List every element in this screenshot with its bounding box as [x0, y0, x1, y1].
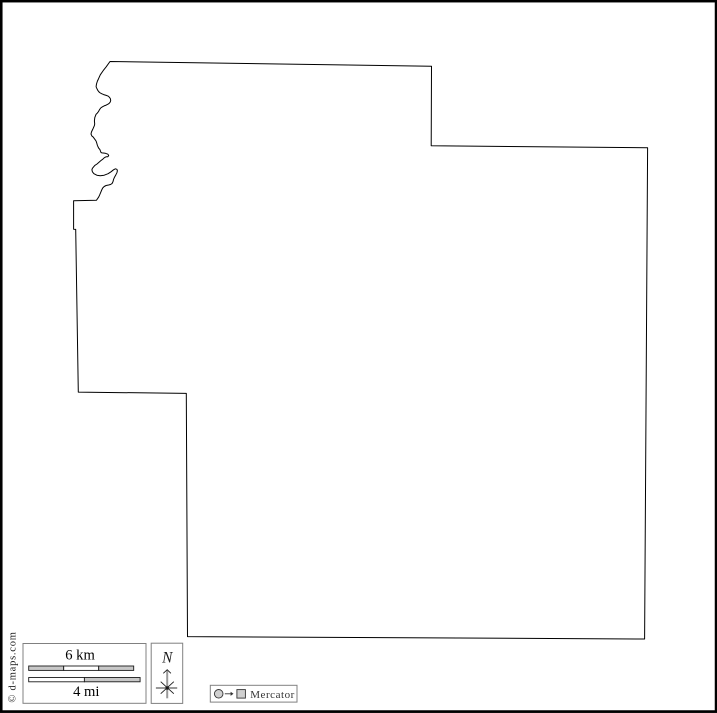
svg-text:© d-maps.com: © d-maps.com	[8, 631, 19, 702]
svg-text:6 km: 6 km	[65, 648, 95, 664]
svg-text:4 mi: 4 mi	[73, 684, 99, 700]
svg-text:N: N	[161, 649, 173, 666]
svg-text:Mercator: Mercator	[250, 689, 295, 701]
